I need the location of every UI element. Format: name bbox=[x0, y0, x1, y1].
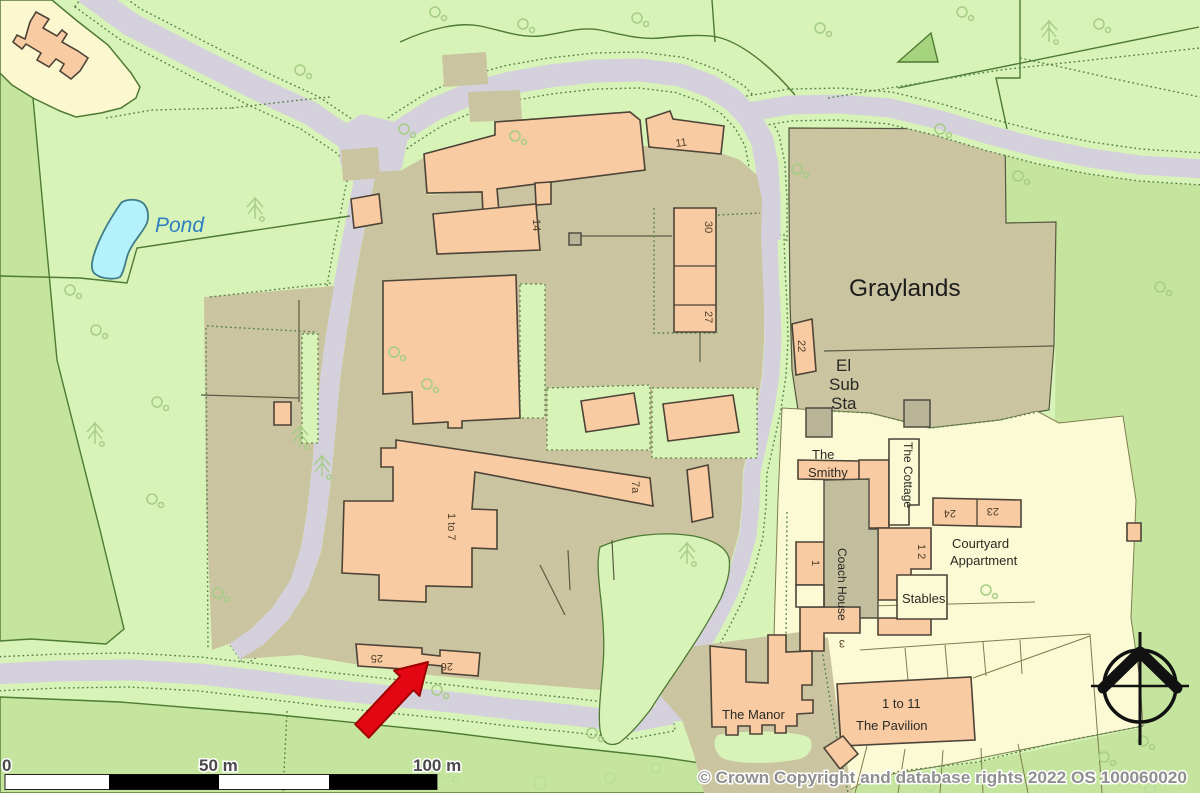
svg-text:© Crown Copyright and database: © Crown Copyright and database rights 20… bbox=[698, 768, 1187, 787]
svg-text:30: 30 bbox=[702, 221, 714, 233]
svg-text:Sub: Sub bbox=[829, 375, 859, 394]
svg-text:Graylands: Graylands bbox=[849, 275, 961, 302]
svg-text:11: 11 bbox=[675, 136, 688, 149]
svg-text:25: 25 bbox=[371, 652, 383, 664]
svg-text:100 m: 100 m bbox=[413, 756, 461, 775]
svg-text:1 to 7: 1 to 7 bbox=[445, 513, 457, 541]
svg-text:Sta: Sta bbox=[831, 394, 857, 413]
svg-text:14: 14 bbox=[530, 219, 542, 231]
svg-text:1: 1 bbox=[809, 560, 821, 566]
svg-text:1 to 11: 1 to 11 bbox=[882, 696, 921, 711]
svg-text:26: 26 bbox=[441, 660, 453, 672]
svg-text:Appartment: Appartment bbox=[950, 553, 1018, 568]
svg-text:27: 27 bbox=[702, 311, 714, 323]
svg-text:The Pavilion: The Pavilion bbox=[856, 718, 928, 733]
svg-text:3: 3 bbox=[839, 637, 845, 649]
svg-text:Coach House: Coach House bbox=[835, 548, 849, 621]
svg-text:The Cottage: The Cottage bbox=[901, 442, 915, 508]
svg-text:24: 24 bbox=[944, 507, 956, 519]
svg-text:The: The bbox=[812, 447, 834, 462]
svg-text:Courtyard: Courtyard bbox=[952, 536, 1009, 551]
svg-text:Pond: Pond bbox=[155, 214, 205, 237]
svg-text:El: El bbox=[836, 356, 851, 375]
svg-text:The Manor: The Manor bbox=[722, 707, 786, 722]
svg-text:Smithy: Smithy bbox=[808, 465, 848, 480]
svg-text:Stables: Stables bbox=[902, 591, 946, 606]
svg-text:0: 0 bbox=[2, 756, 11, 775]
svg-text:7a: 7a bbox=[629, 481, 641, 494]
svg-text:1 2: 1 2 bbox=[915, 544, 927, 559]
svg-text:50 m: 50 m bbox=[199, 756, 238, 775]
svg-text:22: 22 bbox=[795, 340, 807, 352]
svg-text:23: 23 bbox=[987, 505, 999, 517]
